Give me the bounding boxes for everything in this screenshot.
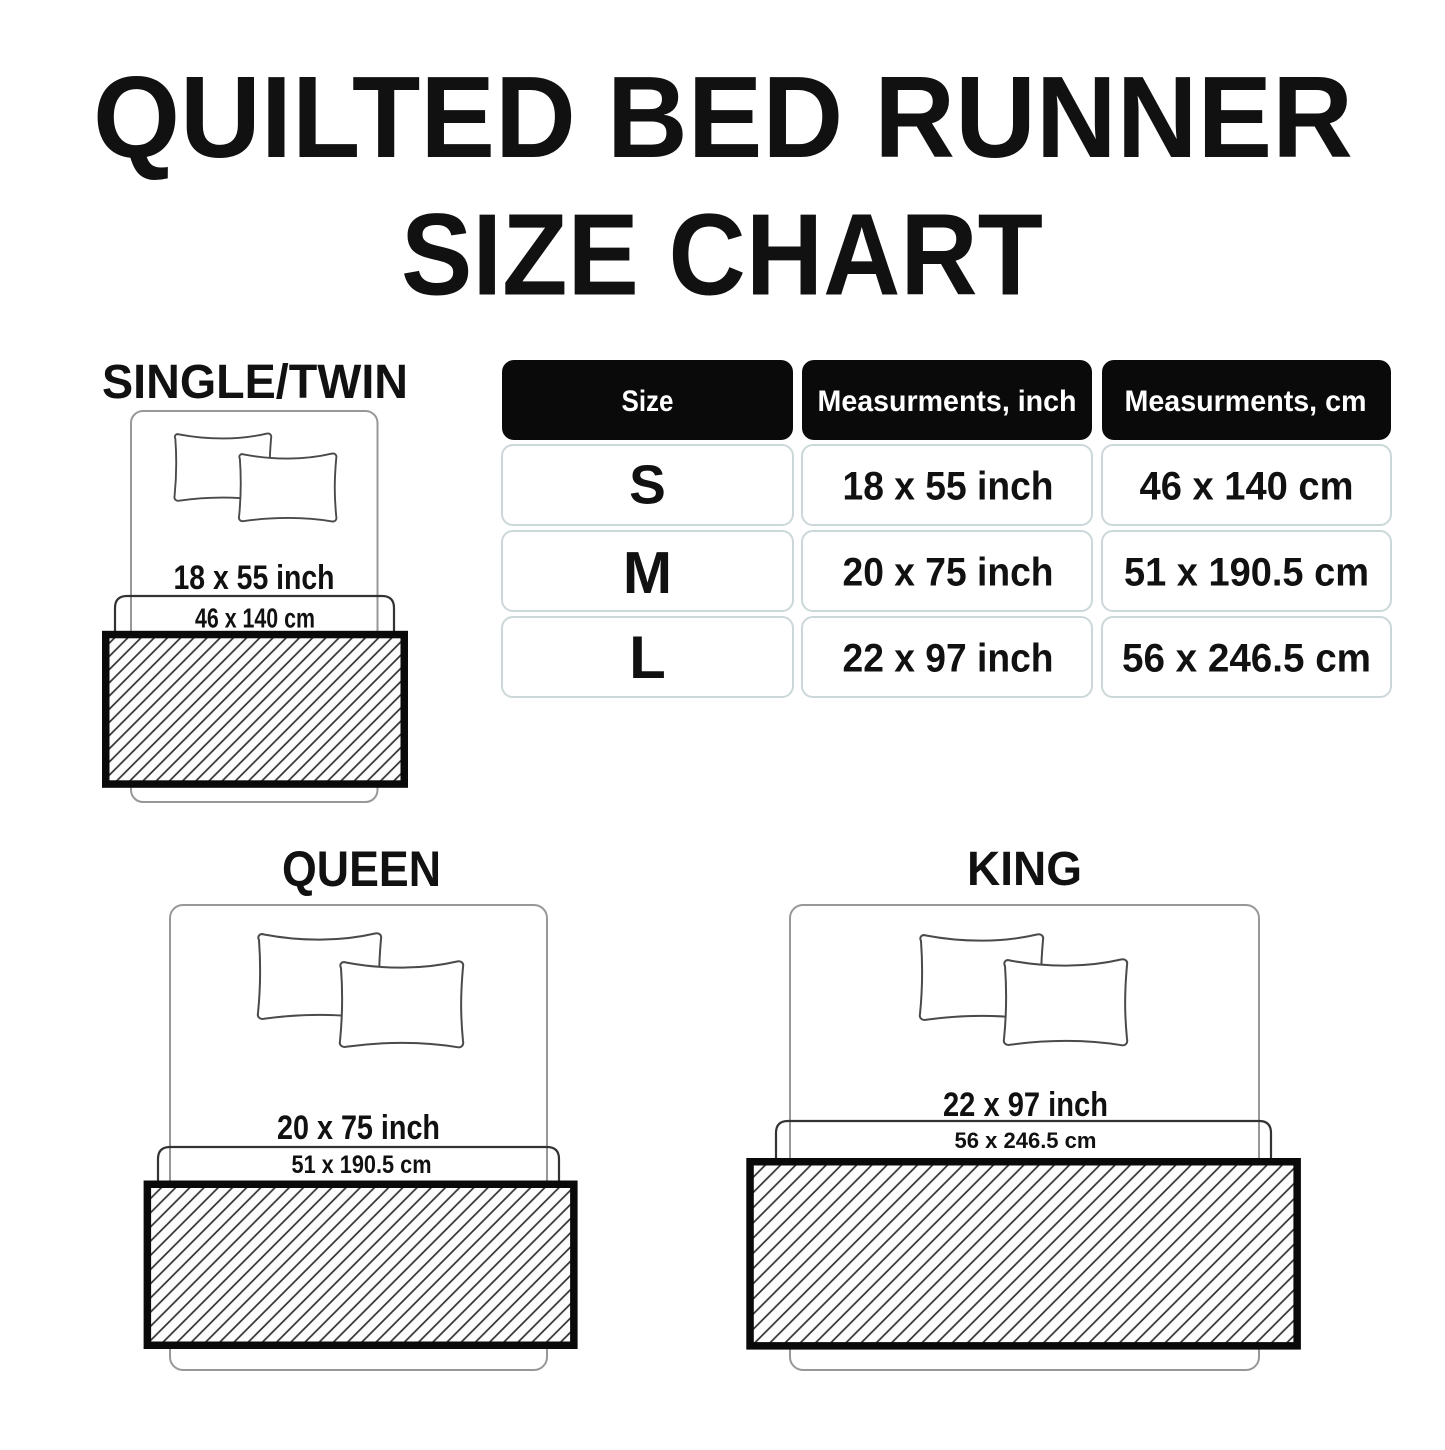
svg-text:56 x 246.5 cm: 56 x 246.5 cm (1122, 637, 1371, 681)
svg-text:51 x 190.5 cm: 51 x 190.5 cm (292, 1151, 432, 1179)
svg-text:KING: KING (967, 843, 1082, 896)
svg-text:Size: Size (622, 385, 674, 418)
svg-text:20 x 75 inch: 20 x 75 inch (843, 551, 1054, 595)
svg-text:M: M (623, 540, 672, 606)
svg-text:22 x 97 inch: 22 x 97 inch (943, 1086, 1108, 1124)
svg-text:QUEEN: QUEEN (282, 841, 441, 897)
svg-text:18 x 55 inch: 18 x 55 inch (843, 465, 1054, 509)
svg-text:SINGLE/TWIN: SINGLE/TWIN (102, 356, 408, 409)
svg-text:46 x 140 cm: 46 x 140 cm (1140, 465, 1354, 509)
svg-text:56 x 246.5 cm: 56 x 246.5 cm (955, 1128, 1097, 1153)
svg-text:20 x 75 inch: 20 x 75 inch (277, 1109, 440, 1147)
svg-text:Measurments, cm: Measurments, cm (1125, 385, 1367, 418)
svg-text:S: S (629, 454, 666, 516)
svg-text:22 x 97 inch: 22 x 97 inch (843, 637, 1054, 681)
svg-text:18 x 55 inch: 18 x 55 inch (174, 559, 335, 597)
svg-text:Measurments, inch: Measurments, inch (818, 385, 1077, 418)
svg-text:L: L (629, 624, 666, 691)
svg-text:51 x 190.5 cm: 51 x 190.5 cm (1124, 551, 1369, 595)
svg-text:46 x 140 cm: 46 x 140 cm (195, 603, 315, 634)
svg-text:QUILTED BED RUNNER: QUILTED BED RUNNER (93, 52, 1353, 182)
svg-text:SIZE CHART: SIZE CHART (401, 190, 1043, 320)
